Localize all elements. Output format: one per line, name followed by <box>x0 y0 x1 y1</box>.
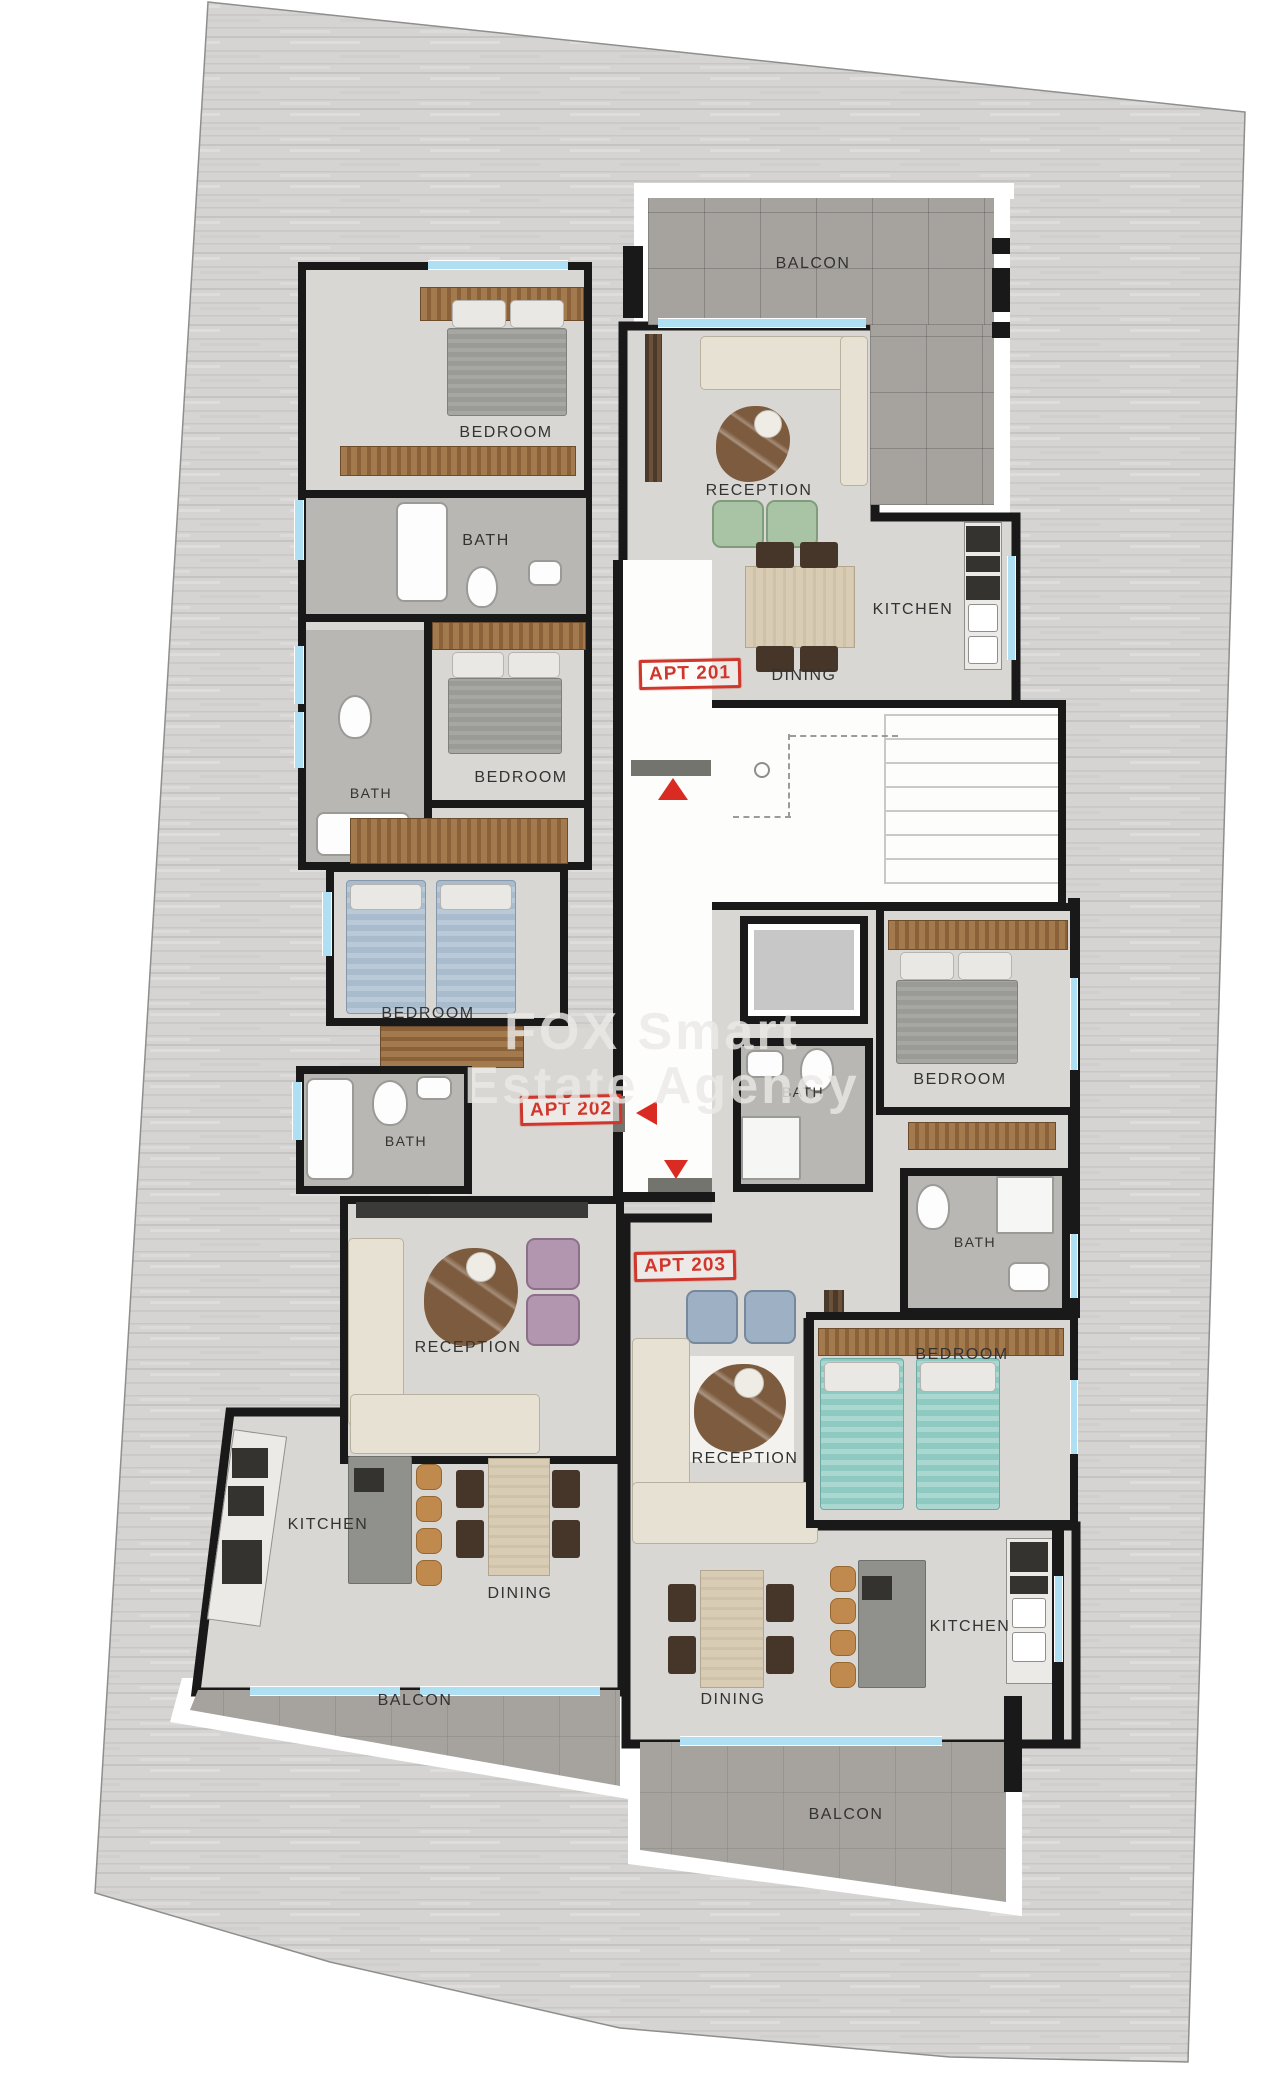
side-table <box>734 1368 764 1398</box>
pillow <box>920 1362 996 1392</box>
bed-headboard <box>888 920 1068 950</box>
room-label-kitchen-202: KITCHEN <box>288 1516 369 1534</box>
stair-tread <box>886 786 1058 788</box>
window <box>294 646 304 704</box>
pillow <box>900 952 954 980</box>
wardrobe <box>340 446 576 476</box>
pillow <box>440 884 512 910</box>
room-label-bedroom-202: BEDROOM <box>381 1005 474 1023</box>
corridor-end-wall <box>613 1192 715 1202</box>
room-label-kitchen-203: KITCHEN <box>930 1618 1011 1636</box>
tv-unit <box>356 1202 588 1218</box>
room-label-bedroom-203b: BEDROOM <box>915 1346 1008 1364</box>
room-label-bedroom-203a: BEDROOM <box>913 1071 1006 1089</box>
room-label-reception-202: RECEPTION <box>415 1339 522 1357</box>
stair-tread <box>886 834 1058 836</box>
wardrobe <box>908 1122 1056 1150</box>
bar-stool <box>416 1496 442 1522</box>
window <box>294 712 304 768</box>
apt203-entrance-threshold <box>648 1178 712 1192</box>
dining-chair <box>800 542 838 568</box>
door-handle-icon <box>754 762 770 778</box>
watermark-line2: Estate Agency <box>464 1056 859 1116</box>
kitchen-sink <box>968 604 998 632</box>
apt201-entrance-threshold <box>631 760 711 776</box>
room-label-reception-201: RECEPTION <box>706 482 813 500</box>
armchair <box>686 1290 738 1344</box>
stove <box>1010 1576 1048 1594</box>
window <box>1007 556 1016 660</box>
stairwell <box>712 700 1066 910</box>
pillow <box>508 652 560 678</box>
stair-tread <box>886 738 1058 740</box>
apt-201-tag: APT 201 <box>639 658 742 690</box>
window <box>680 1736 942 1746</box>
dining-chair <box>456 1520 484 1558</box>
watermark-line1: FOX Smart <box>504 1002 800 1062</box>
window <box>1070 1380 1078 1454</box>
dining-chair <box>766 1636 794 1674</box>
window <box>322 892 332 956</box>
kitchen-sink <box>968 636 998 664</box>
armchair <box>526 1294 580 1346</box>
stove <box>966 556 1000 572</box>
room-label-bedroom-201a: BEDROOM <box>459 424 552 442</box>
stair-tread <box>886 882 1058 884</box>
room-label-kitchen-201: KITCHEN <box>873 601 954 619</box>
dining-chair <box>456 1470 484 1508</box>
shower <box>996 1176 1054 1234</box>
window <box>1054 1576 1063 1662</box>
oven <box>232 1448 268 1478</box>
stair-tread <box>886 810 1058 812</box>
cooktop <box>862 1576 892 1600</box>
bar-stool <box>416 1528 442 1554</box>
double-bed <box>896 980 1018 1064</box>
side-table <box>754 410 782 438</box>
armchair <box>526 1238 580 1290</box>
toilet <box>372 1080 408 1126</box>
bar-stool <box>416 1464 442 1490</box>
dining-chair <box>756 542 794 568</box>
bar-stool <box>830 1630 856 1656</box>
window <box>1070 978 1078 1070</box>
cooktop <box>354 1468 384 1492</box>
sofa <box>632 1482 818 1544</box>
wardrobe <box>350 818 568 864</box>
bathtub <box>396 502 448 602</box>
room-label-dining-203: DINING <box>701 1691 766 1709</box>
bathtub <box>306 1078 354 1180</box>
armchair <box>766 500 818 548</box>
bed-headboard <box>432 622 586 650</box>
oven <box>1010 1542 1048 1572</box>
sink <box>416 1076 452 1100</box>
stove <box>222 1540 262 1584</box>
bar-stool <box>830 1598 856 1624</box>
window <box>428 260 568 270</box>
double-bed <box>448 678 562 754</box>
shower <box>741 1116 801 1180</box>
door-swing-dashed <box>733 816 791 818</box>
sink <box>1008 1262 1050 1292</box>
balcony-wall-stub <box>1004 1696 1022 1792</box>
window-balcony-door <box>658 318 866 328</box>
sofa-chaise <box>840 336 868 486</box>
tv-unit <box>645 334 662 482</box>
dining-chair <box>668 1584 696 1622</box>
kitchen-sink <box>1012 1598 1046 1628</box>
toilet <box>338 695 372 739</box>
apt-203-tag: APT 203 <box>634 1250 737 1282</box>
armchair <box>712 500 764 548</box>
bar-stool <box>830 1566 856 1592</box>
side-table <box>466 1252 496 1282</box>
stove <box>228 1486 264 1516</box>
door-swing-dashed <box>790 735 898 737</box>
room-label-balcon-203: BALCON <box>809 1806 884 1824</box>
room-label-bath-201: BATH <box>462 532 509 550</box>
interior-wall <box>306 614 586 622</box>
pillow <box>350 884 422 910</box>
kitchen-sink <box>1012 1632 1046 1662</box>
room-label-bedroom-201b: BEDROOM <box>474 769 567 787</box>
stair-tread <box>886 714 1058 716</box>
dining-chair <box>668 1636 696 1674</box>
window <box>292 1082 302 1140</box>
dining-table <box>700 1570 764 1688</box>
pillow <box>958 952 1012 980</box>
microwave <box>966 576 1000 600</box>
pillow <box>824 1362 900 1392</box>
room-label-bath-202a: BATH <box>350 785 392 801</box>
stair-tread <box>886 858 1058 860</box>
stair-stringer <box>884 714 886 884</box>
toilet <box>466 566 498 608</box>
room-label-bath-203b: BATH <box>954 1234 996 1250</box>
oven <box>966 526 1000 552</box>
room-label-dining-202: DINING <box>488 1585 553 1603</box>
room-label-reception-203: RECEPTION <box>692 1450 799 1468</box>
floor-plan: BALCON BEDROOM RECEPTION BATH KITCHEN DI… <box>0 0 1280 2074</box>
pillow <box>510 300 564 328</box>
window <box>294 500 304 560</box>
room-label-balcon-202: BALCON <box>378 1692 453 1710</box>
dining-table <box>488 1458 550 1576</box>
interior-wall <box>432 800 592 808</box>
stair-tread <box>886 762 1058 764</box>
dining-chair <box>766 1584 794 1622</box>
dining-table <box>745 566 855 648</box>
sofa <box>350 1394 540 1454</box>
apt203-entrance-arrow <box>664 1160 688 1179</box>
dining-chair <box>552 1470 580 1508</box>
double-bed <box>447 328 567 416</box>
interior-wall <box>306 490 586 498</box>
bar-stool <box>416 1560 442 1586</box>
bar-stool <box>830 1662 856 1688</box>
door-swing-dashed <box>788 734 790 818</box>
apt201-entrance-arrow <box>658 778 688 800</box>
dining-chair <box>552 1520 580 1558</box>
armchair <box>744 1290 796 1344</box>
pillow <box>452 652 504 678</box>
sink <box>528 560 562 586</box>
toilet <box>916 1184 950 1230</box>
pillow <box>452 300 506 328</box>
room-label-bath-202b: BATH <box>385 1133 427 1149</box>
room-label-dining-201: DINING <box>772 667 837 685</box>
window <box>1070 1234 1078 1298</box>
room-label-balcon-201: BALCON <box>776 255 851 273</box>
